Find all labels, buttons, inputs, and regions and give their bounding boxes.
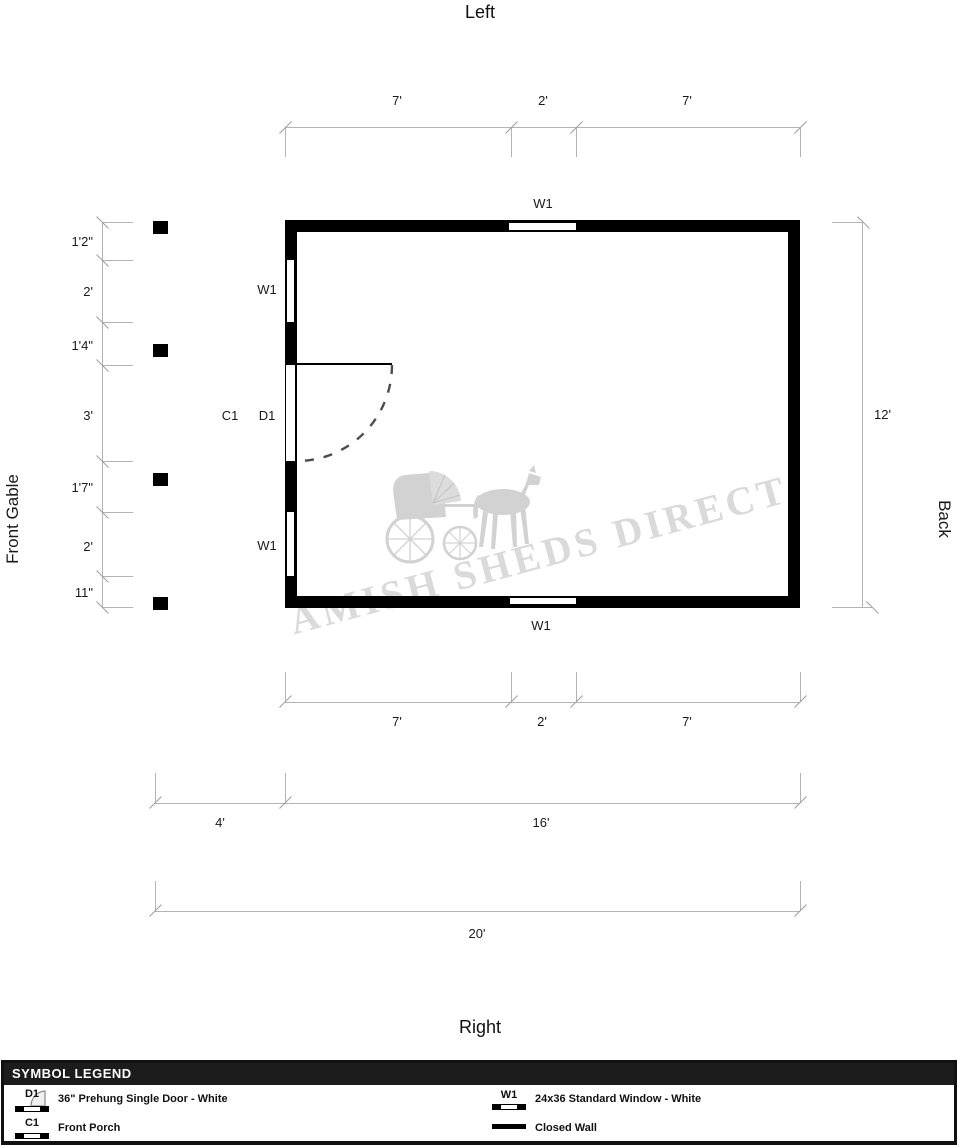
legend-item-label: 24x36 Standard Window - White	[535, 1093, 701, 1105]
dim-label: 20'	[427, 926, 527, 941]
tick-mark	[285, 773, 286, 803]
tick-mark	[102, 512, 133, 513]
side-title-bottom: Right	[430, 1017, 530, 1037]
porch-post	[153, 473, 168, 486]
tick-mark	[832, 607, 872, 608]
door-label: D1	[217, 408, 317, 423]
legend-symbol-code: W1	[492, 1089, 526, 1101]
tick-mark	[511, 672, 512, 702]
window-label-bottom: W1	[491, 618, 591, 633]
dim-line	[155, 803, 800, 804]
side-title-left: Front Gable	[3, 464, 23, 574]
legend-symbol-window: W1	[492, 1089, 526, 1110]
dim-label: 1'7"	[38, 480, 93, 495]
dim-label: 7'	[637, 93, 737, 108]
tick-mark	[102, 607, 133, 608]
dim-label: 2'	[38, 284, 93, 299]
legend-item-label: Closed Wall	[535, 1122, 597, 1134]
tick-mark	[102, 260, 133, 261]
side-title-top: Left	[430, 2, 530, 22]
porch-post	[153, 344, 168, 357]
dim-label: 2'	[492, 714, 592, 729]
window-label-top: W1	[493, 196, 593, 211]
tick-mark	[576, 127, 577, 157]
dim-line	[285, 702, 800, 703]
legend-item-label: 36" Prehung Single Door - White	[58, 1093, 228, 1105]
tick-mark	[102, 576, 133, 577]
tick-mark	[102, 461, 133, 462]
tick-mark	[102, 322, 133, 323]
dim-label: 7'	[347, 93, 447, 108]
side-title-right: Back	[934, 494, 954, 544]
tick-mark	[102, 222, 133, 223]
legend-item-label: Front Porch	[58, 1122, 120, 1134]
porch-post	[153, 221, 168, 234]
tick-mark	[285, 127, 286, 157]
tick-mark	[576, 672, 577, 702]
porch-post	[153, 597, 168, 610]
tick-mark	[800, 773, 801, 803]
tick-mark	[155, 881, 156, 911]
dim-label: 16'	[491, 815, 591, 830]
legend-symbol-door: D1	[15, 1086, 49, 1112]
dim-label: 2'	[38, 539, 93, 554]
tick-mark	[832, 222, 863, 223]
window-label-left-lower: W1	[217, 538, 317, 553]
tick-mark	[800, 672, 801, 702]
legend-symbol-closed-wall	[492, 1124, 526, 1129]
tick-mark	[800, 127, 801, 157]
dim-label: 2'	[493, 93, 593, 108]
dim-line	[155, 911, 800, 912]
dim-label: 11"	[38, 585, 93, 600]
legend-symbol-code: D1	[15, 1088, 49, 1100]
dim-label: 4'	[170, 815, 270, 830]
dim-label: 7'	[347, 714, 447, 729]
dim-label: 1'2"	[38, 234, 93, 249]
dim-line	[285, 127, 800, 128]
tick-mark	[800, 881, 801, 911]
window-bottom	[510, 598, 576, 604]
tick-mark	[285, 672, 286, 702]
dim-label: 7'	[637, 714, 737, 729]
legend-symbol-code: C1	[15, 1117, 49, 1129]
tick-mark	[511, 127, 512, 157]
floor-plan: Left Right Front Gable Back	[0, 0, 959, 1145]
dim-label: 12'	[874, 407, 891, 422]
dim-label: 3'	[38, 408, 93, 423]
legend-header: SYMBOL LEGEND	[4, 1063, 954, 1085]
legend-symbol-porch: C1	[15, 1117, 49, 1139]
tick-mark	[102, 365, 133, 366]
dim-line	[102, 222, 103, 607]
window-label-left-upper: W1	[217, 282, 317, 297]
dim-label: 1'4"	[38, 338, 93, 353]
dim-line	[862, 222, 863, 607]
window-top	[509, 223, 576, 230]
tick-mark	[155, 773, 156, 803]
